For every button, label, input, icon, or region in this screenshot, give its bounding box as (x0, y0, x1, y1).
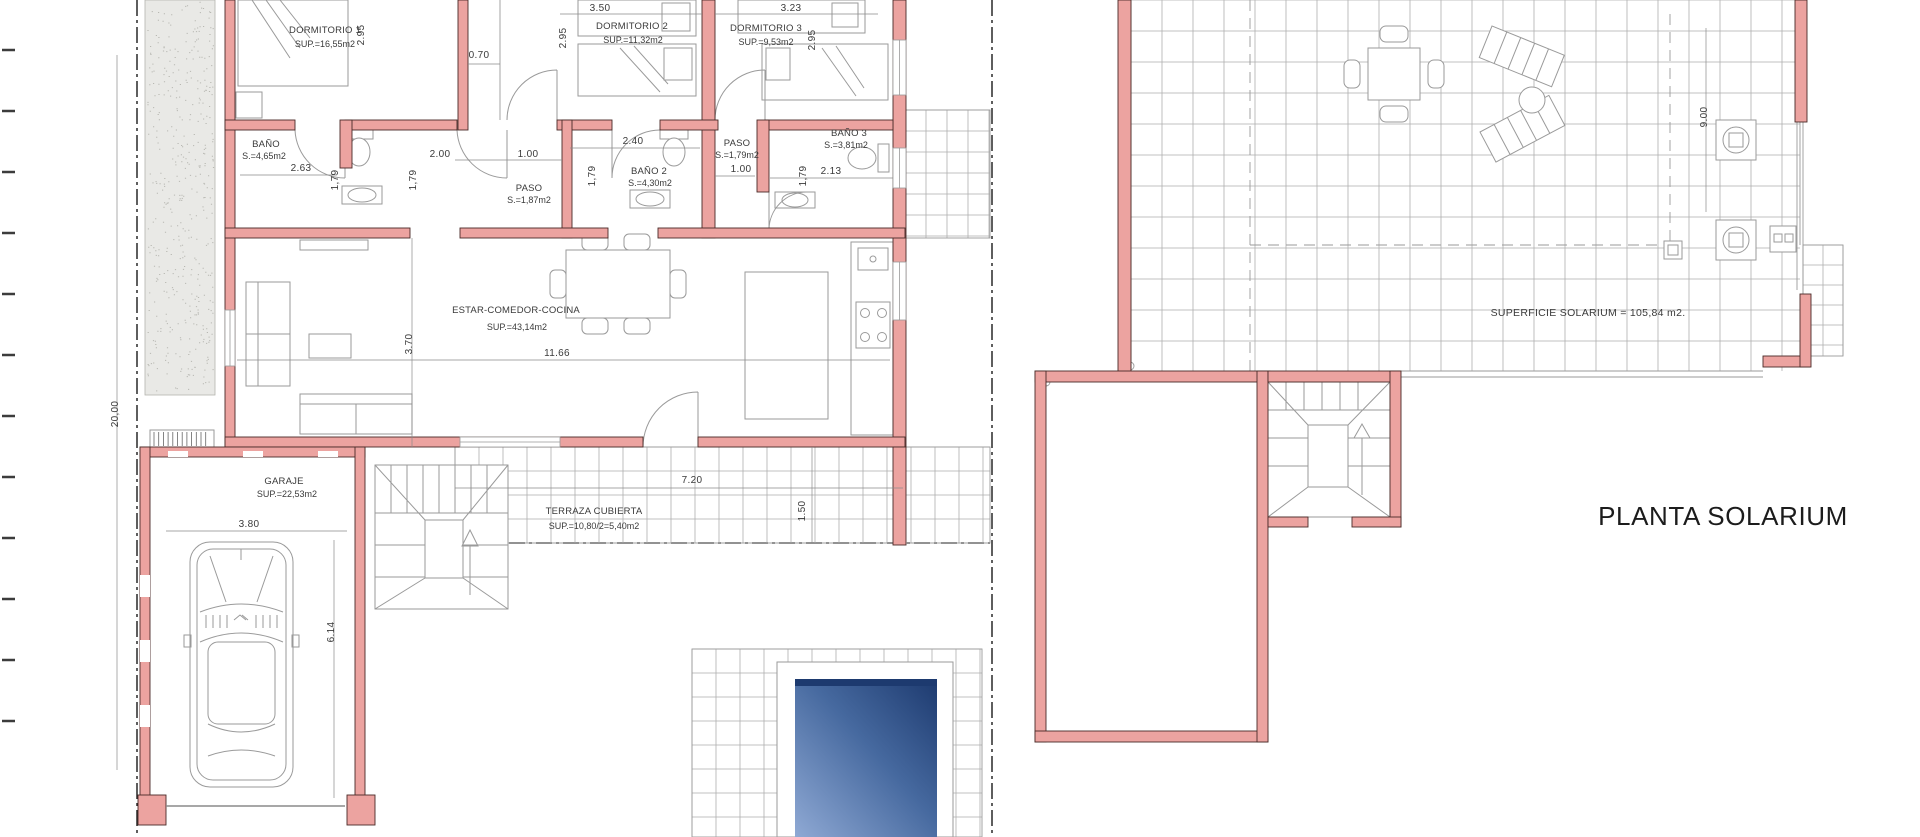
room-label-dormitorio2: DORMITORIO 2 (596, 21, 668, 32)
plan-title: PLANTA SOLARIUM (1598, 501, 1848, 531)
dim-bano2-depth: 1,79 (587, 166, 598, 187)
roof-drain (1664, 241, 1682, 259)
dim-paso1-w2: 1.00 (518, 149, 539, 160)
bed-dormitorio1 (236, 0, 348, 118)
area-label-paso1: S.=1,87m2 (507, 195, 551, 205)
room-label-bano1: BAÑO (252, 139, 280, 150)
toilet-bano2 (660, 128, 688, 166)
dim-dorm3-width: 3.23 (781, 3, 802, 14)
dim-bano1-depth: 1,79 (330, 170, 341, 191)
lot-edge-ticks (2, 50, 15, 721)
solarium-surface-label: SUPERFICIE SOLARIUM = 105,84 m2. (1491, 307, 1686, 319)
dim-paso2-width: 1.00 (731, 164, 752, 175)
dim-estar-depth: 3.70 (404, 334, 415, 355)
dim-estar-width: 11.66 (544, 348, 570, 359)
roof-vent-2 (1716, 220, 1756, 260)
solarium-grid (1131, 0, 1800, 371)
pool (777, 662, 953, 837)
area-label-paso2: S.=1,79m2 (715, 150, 759, 160)
dim-plot-height: 20,00 (110, 401, 121, 428)
plan-sheet: DORMITORIO 1 SUP.=16,55m2 DORMITORIO 2 S… (0, 0, 1920, 837)
furniture-layer (150, 0, 1796, 787)
area-label-dormitorio3: SUP.=9,53m2 (738, 37, 793, 47)
window (893, 40, 906, 95)
area-label-bano2: S.=4,30m2 (628, 178, 672, 188)
dim-dorm2-width: 3.50 (590, 3, 611, 14)
dim-paso1-w1: 2.00 (430, 149, 451, 160)
roof-vent-1 (1716, 120, 1756, 160)
roof-box (1770, 226, 1796, 252)
area-label-garaje: SUP.=22,53m2 (257, 489, 317, 499)
dining-table-set (550, 234, 686, 334)
dim-bano1-width: 2.63 (291, 163, 312, 174)
window (893, 262, 906, 320)
dim-dorm1-depth: 2.95 (356, 25, 367, 46)
room-label-estar: ESTAR-COMEDOR-COCINA (452, 305, 580, 316)
kitchen-counter (851, 242, 893, 435)
dim-paso1-depth: 1,79 (408, 170, 419, 191)
sink-bano3 (775, 192, 815, 208)
area-label-bano3: S.=3,81m2 (824, 140, 868, 150)
dim-solarium-depth: 9.00 (1699, 107, 1710, 128)
area-label-dormitorio2: SUP.=11,32m2 (603, 35, 662, 45)
pool-water (795, 679, 937, 837)
area-label-estar: SUP.=43,14m2 (487, 322, 547, 332)
staircase-ground (375, 465, 508, 609)
area-label-bano1: S.=4,65m2 (242, 151, 286, 161)
pool-dark-edge (795, 679, 937, 686)
window (225, 310, 235, 366)
dim-dorm3-depth: 2.95 (807, 30, 818, 51)
dim-bano3-depth: 1,79 (798, 166, 809, 187)
terrace-grid (455, 447, 990, 543)
room-label-bano3: BAÑO 3 (831, 128, 867, 139)
floor-plan-canvas: DORMITORIO 1 SUP.=16,55m2 DORMITORIO 2 S… (0, 0, 1920, 837)
solarium-parapet (1131, 0, 1803, 377)
area-label-dormitorio1: SUP.=16,55m2 (295, 39, 355, 49)
room-label-dormitorio1: DORMITORIO 1 (289, 25, 361, 36)
dim-terraza-depth: 1.50 (797, 501, 808, 522)
drain-grate (150, 430, 214, 448)
dim-dorm2-depth: 2.95 (558, 28, 569, 49)
tv-unit (300, 240, 368, 250)
dim-terraza-width: 7.20 (682, 475, 703, 486)
kitchen-island (745, 272, 828, 419)
table-set-solarium (1344, 26, 1444, 122)
room-label-paso2: PASO (724, 138, 751, 149)
room-label-garaje: GARAJE (264, 476, 303, 487)
porch-grid (905, 110, 990, 238)
sofa-set (246, 282, 412, 434)
stipple-strip (145, 0, 215, 395)
dim-bano2-width: 2.40 (623, 136, 644, 147)
sink-bano1 (342, 186, 382, 204)
area-label-terraza: SUP.=10,80/2=5,40m2 (549, 521, 639, 531)
room-label-bano2: BAÑO 2 (631, 166, 667, 177)
dim-garaje-depth: 6.14 (326, 622, 337, 643)
side-table (1519, 87, 1545, 113)
sink-bano2 (630, 190, 670, 208)
staircase-solarium (1268, 382, 1390, 517)
room-label-paso1: PASO (516, 183, 543, 194)
beds-dormitorio2 (578, 0, 696, 96)
dim-pasillo: 0.70 (469, 50, 490, 61)
window (893, 148, 906, 188)
room-label-dormitorio3: DORMITORIO 3 (730, 23, 802, 34)
labels: DORMITORIO 1 SUP.=16,55m2 DORMITORIO 2 S… (110, 3, 1848, 642)
window (460, 437, 560, 447)
dim-garaje-width: 3.80 (239, 519, 260, 530)
room-label-terraza: TERRAZA CUBIERTA (546, 506, 643, 517)
dim-bano3-width: 2.13 (821, 166, 842, 177)
car (184, 542, 299, 787)
